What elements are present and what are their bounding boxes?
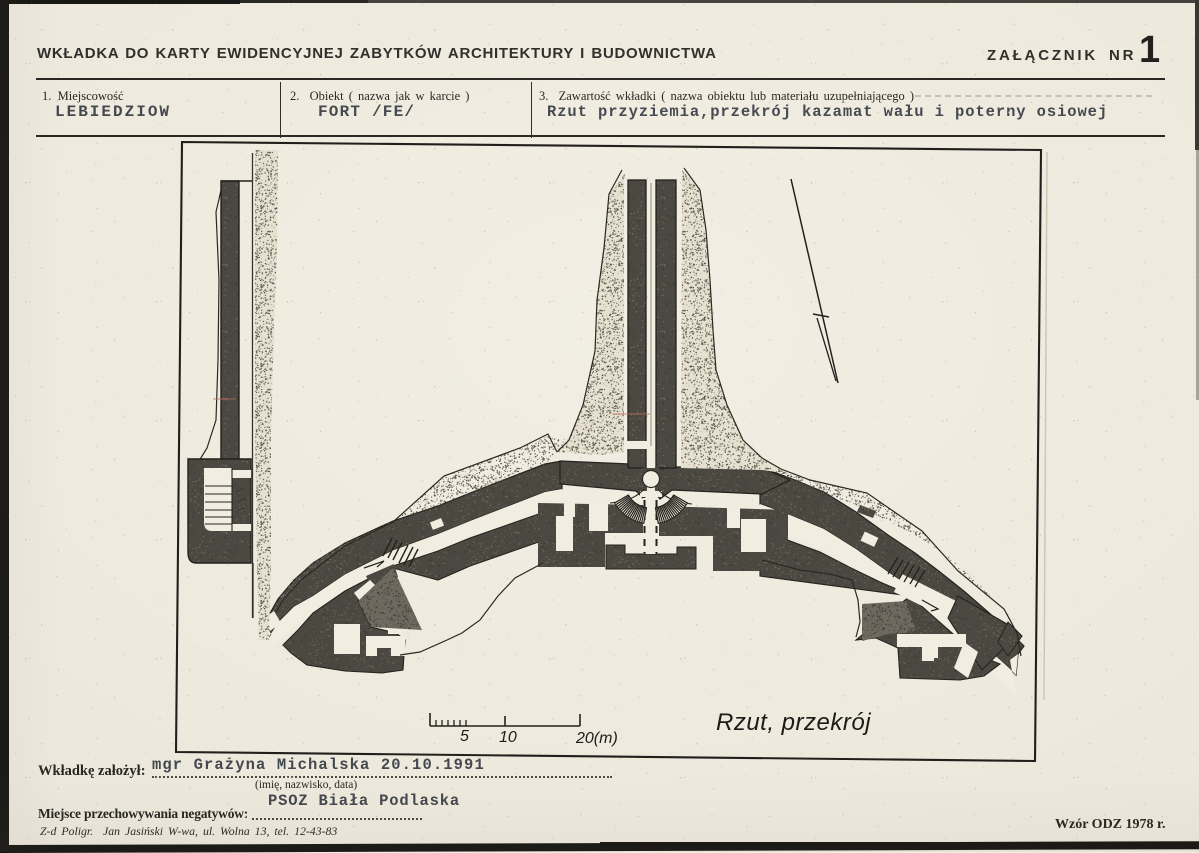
svg-text:Rzut, przekrój: Rzut, przekrój — [716, 709, 871, 736]
svg-text:10: 10 — [499, 729, 517, 746]
svg-text:5: 5 — [460, 728, 469, 745]
svg-text:20(m): 20(m) — [575, 730, 618, 747]
